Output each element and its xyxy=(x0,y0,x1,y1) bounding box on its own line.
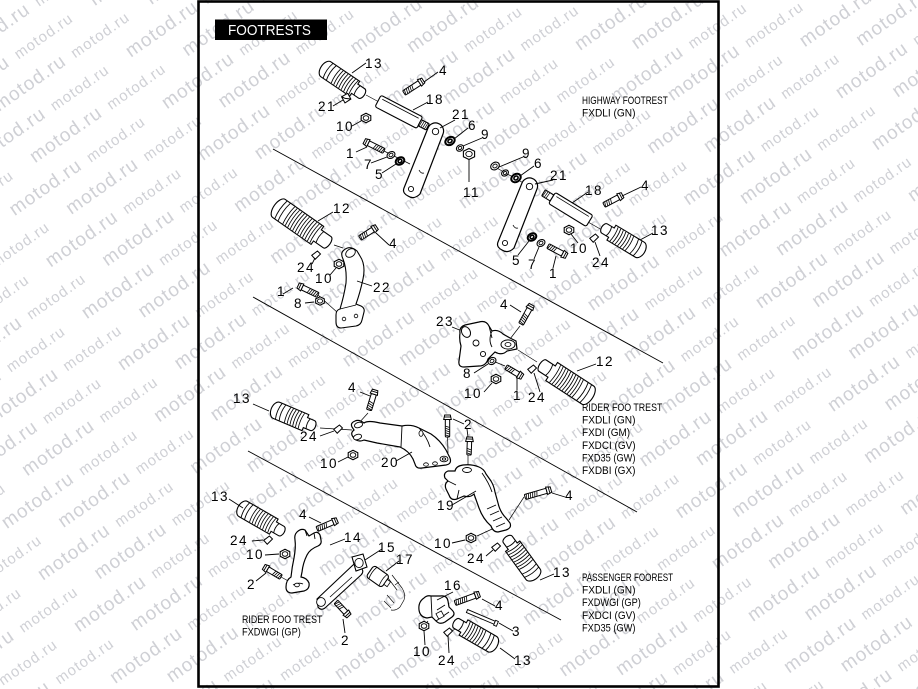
svg-text:10: 10 xyxy=(246,547,264,562)
svg-text:1: 1 xyxy=(549,266,558,281)
svg-text:motod.ru: motod.ru xyxy=(778,50,843,103)
svg-text:16: 16 xyxy=(444,578,462,593)
svg-text:motod.ru: motod.ru xyxy=(878,518,918,571)
svg-text:24: 24 xyxy=(467,551,485,566)
svg-text:10: 10 xyxy=(336,119,354,134)
svg-text:10: 10 xyxy=(320,456,338,471)
svg-text:4: 4 xyxy=(495,598,504,613)
svg-text:24: 24 xyxy=(592,255,610,270)
svg-text:4: 4 xyxy=(439,63,448,78)
svg-text:10: 10 xyxy=(315,271,333,286)
svg-text:4: 4 xyxy=(299,507,308,522)
svg-text:motod.ru: motod.ru xyxy=(734,312,799,365)
svg-text:motod.ru: motod.ru xyxy=(32,0,97,10)
svg-text:1: 1 xyxy=(277,284,286,299)
svg-text:7: 7 xyxy=(364,157,373,172)
svg-text:motod.ru: motod.ru xyxy=(868,90,918,155)
svg-text:7: 7 xyxy=(528,257,537,272)
svg-text:18: 18 xyxy=(426,92,444,107)
svg-text:24: 24 xyxy=(300,429,318,444)
svg-text:motod.ru: motod.ru xyxy=(904,141,918,206)
svg-text:motod.ru: motod.ru xyxy=(96,374,161,427)
svg-text:4: 4 xyxy=(348,380,357,395)
svg-text:10: 10 xyxy=(413,644,431,659)
svg-text:12: 12 xyxy=(333,201,351,216)
svg-text:motod.ru: motod.ru xyxy=(16,583,81,636)
svg-text:2: 2 xyxy=(247,577,256,592)
svg-text:motod.ru: motod.ru xyxy=(618,470,683,523)
svg-text:22: 22 xyxy=(373,280,391,295)
svg-text:motod.ru: motod.ru xyxy=(517,2,582,55)
svg-text:13: 13 xyxy=(365,56,383,71)
svg-text:13: 13 xyxy=(233,391,251,406)
svg-text:motod.ru: motod.ru xyxy=(24,270,89,323)
svg-text:24: 24 xyxy=(438,653,456,668)
svg-text:motod.ru: motod.ru xyxy=(842,466,907,519)
svg-text:9: 9 xyxy=(481,127,490,142)
svg-text:4: 4 xyxy=(641,178,650,193)
svg-text:motod.ru: motod.ru xyxy=(0,219,53,272)
svg-text:HIGHWAY FOOTREST FXDLI (GN): HIGHWAY FOOTREST FXDLI (GN) xyxy=(582,95,671,120)
svg-text:1: 1 xyxy=(346,146,355,161)
svg-text:13: 13 xyxy=(651,223,669,238)
svg-text:23: 23 xyxy=(436,314,454,329)
svg-text:20: 20 xyxy=(381,455,399,470)
svg-text:9: 9 xyxy=(522,146,531,161)
svg-text:24: 24 xyxy=(297,260,315,275)
svg-text:13: 13 xyxy=(211,489,229,504)
svg-text:10: 10 xyxy=(570,241,588,256)
svg-text:motod.ru: motod.ru xyxy=(850,153,915,206)
svg-text:motod.ru: motod.ru xyxy=(140,112,205,165)
svg-text:5: 5 xyxy=(512,253,521,268)
svg-text:motod.ru: motod.ru xyxy=(52,635,117,688)
svg-text:8: 8 xyxy=(294,296,303,311)
svg-text:11: 11 xyxy=(463,185,480,200)
svg-text:motod.ru: motod.ru xyxy=(698,260,763,313)
svg-text:FOOTRESTS: FOOTRESTS xyxy=(228,23,311,39)
svg-text:6: 6 xyxy=(534,156,543,171)
svg-text:8: 8 xyxy=(463,366,472,381)
svg-text:4: 4 xyxy=(389,236,398,251)
svg-text:24: 24 xyxy=(230,533,248,548)
svg-text:15: 15 xyxy=(378,540,396,555)
svg-text:motod.ru: motod.ru xyxy=(762,676,827,689)
svg-text:motod.ru: motod.ru xyxy=(690,573,755,626)
svg-text:6: 6 xyxy=(468,118,477,133)
svg-text:motod.ru: motod.ru xyxy=(886,205,918,258)
svg-text:18: 18 xyxy=(585,183,603,198)
svg-text:motod.ru: motod.ru xyxy=(770,363,835,416)
svg-text:motod.ru: motod.ru xyxy=(742,0,807,51)
svg-text:10: 10 xyxy=(434,536,452,551)
svg-text:motod.ru: motod.ru xyxy=(654,521,719,574)
svg-text:4: 4 xyxy=(565,488,574,503)
svg-text:motod.ru: motod.ru xyxy=(896,454,918,519)
svg-text:2: 2 xyxy=(341,633,350,648)
svg-text:motod.ru: motod.ru xyxy=(277,632,342,685)
svg-text:motod.ru: motod.ru xyxy=(625,157,690,210)
svg-text:19: 19 xyxy=(437,498,455,513)
svg-text:motod.ru: motod.ru xyxy=(68,9,133,62)
svg-text:24: 24 xyxy=(528,390,546,405)
svg-text:21: 21 xyxy=(550,168,568,183)
svg-text:5: 5 xyxy=(375,167,384,182)
svg-text:10: 10 xyxy=(464,386,482,401)
svg-text:4: 4 xyxy=(500,297,509,312)
svg-text:14: 14 xyxy=(344,530,362,545)
svg-text:motod.ru: motod.ru xyxy=(661,208,726,261)
svg-text:motod.ru: motod.ru xyxy=(806,415,871,468)
svg-text:motod.ru: motod.ru xyxy=(860,403,918,468)
svg-text:motod.ru: motod.ru xyxy=(814,102,879,155)
svg-text:motod.ru: motod.ru xyxy=(104,60,169,113)
svg-text:21: 21 xyxy=(318,99,336,114)
svg-text:motod.ru: motod.ru xyxy=(212,215,277,268)
svg-text:3: 3 xyxy=(512,624,521,639)
svg-text:motod.ru: motod.ru xyxy=(0,532,45,585)
svg-text:2: 2 xyxy=(464,417,473,432)
svg-text:13: 13 xyxy=(553,565,571,580)
svg-text:1: 1 xyxy=(513,388,522,403)
svg-text:12: 12 xyxy=(596,354,614,369)
svg-text:motod.ru: motod.ru xyxy=(132,425,197,478)
svg-text:motod.ru: motod.ru xyxy=(60,322,125,375)
svg-text:motod.ru: motod.ru xyxy=(176,164,241,217)
svg-text:motod.ru: motod.ru xyxy=(726,625,791,678)
svg-text:17: 17 xyxy=(396,552,414,567)
svg-text:13: 13 xyxy=(514,653,532,668)
